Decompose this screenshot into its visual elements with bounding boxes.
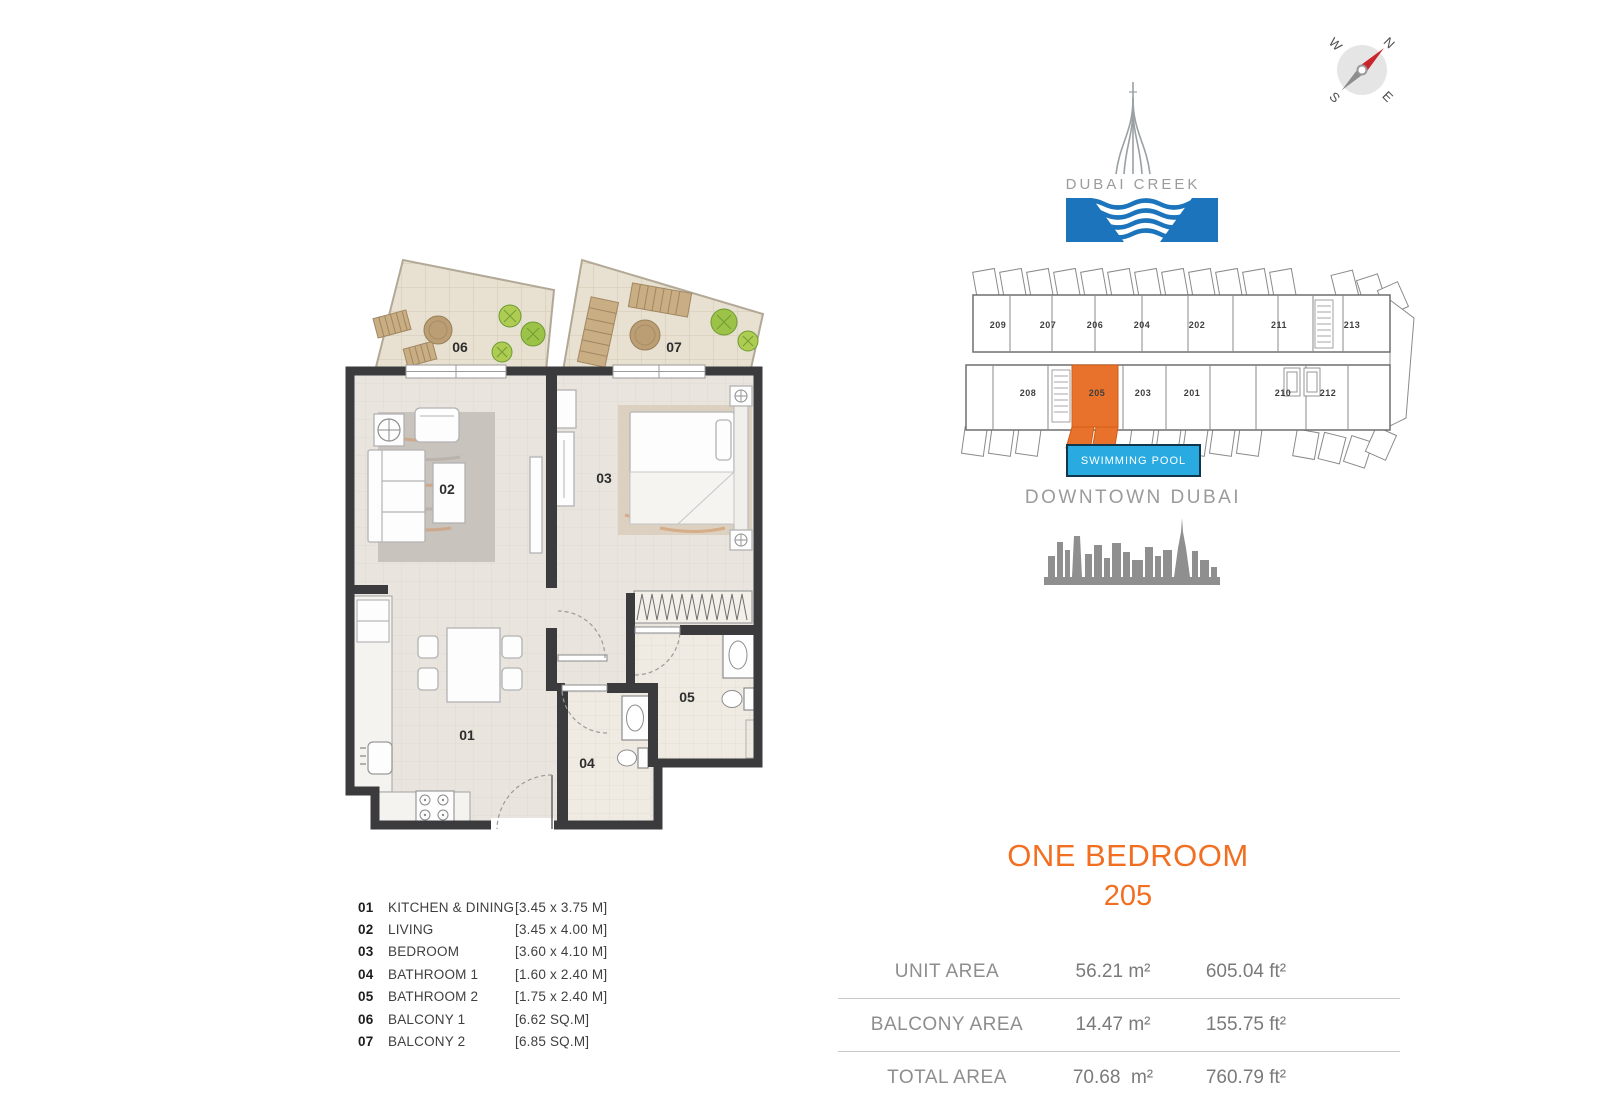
area-metric: 56.21 m² xyxy=(1056,961,1170,983)
legend-row: 07BALCONY 2[6.85 SQ.M] xyxy=(358,1030,607,1052)
dining-chair xyxy=(418,668,438,690)
legend-name: BATHROOM 1 xyxy=(388,967,515,982)
legend-row: 03BEDROOM[3.60 x 4.10 M] xyxy=(358,941,607,963)
room-label-01: 01 xyxy=(459,727,475,743)
room-label-03: 03 xyxy=(596,470,612,486)
legend-num: 04 xyxy=(358,967,388,982)
area-metric: 14.47 m² xyxy=(1056,1014,1170,1036)
keyplan-unit-number: 205 xyxy=(1089,388,1106,398)
area-label: UNIT AREA xyxy=(838,961,1056,983)
compass-s: S xyxy=(1326,89,1343,106)
room-label-07: 07 xyxy=(666,339,682,355)
legend-name: BEDROOM xyxy=(388,944,515,959)
room-label-05: 05 xyxy=(679,689,695,705)
area-table: UNIT AREA 56.21 m² 605.04 ft² BALCONY AR… xyxy=(838,946,1400,1104)
area-imperial: 155.75 ft² xyxy=(1170,1014,1322,1036)
legend-name: BALCONY 1 xyxy=(388,1012,515,1027)
legend-dim: [3.45 x 4.00 M] xyxy=(515,922,607,937)
legend-dim: [3.45 x 3.75 M] xyxy=(515,900,607,915)
room-label-06: 06 xyxy=(452,339,468,355)
keyplan-unit-number: 207 xyxy=(1040,320,1057,330)
room-legend: 01KITCHEN & DINING[3.45 x 3.75 M] 02LIVI… xyxy=(358,896,607,1053)
legend-dim: [1.60 x 2.40 M] xyxy=(515,967,607,982)
keyplan-unit-number: 202 xyxy=(1189,320,1206,330)
legend-num: 02 xyxy=(358,922,388,937)
legend-row: 04BATHROOM 1[1.60 x 2.40 M] xyxy=(358,963,607,985)
pillow xyxy=(716,420,731,460)
keyplan-unit-number: 206 xyxy=(1087,320,1104,330)
area-metric: 70.68 m² xyxy=(1056,1067,1170,1089)
legend-row: 02LIVING[3.45 x 4.00 M] xyxy=(358,918,607,940)
balcony-06: 06 xyxy=(373,260,554,371)
legend-name: BATHROOM 2 xyxy=(388,989,515,1004)
legend-dim: [6.85 SQ.M] xyxy=(515,1034,589,1049)
keyplan-unit-number: 212 xyxy=(1320,388,1337,398)
legend-num: 06 xyxy=(358,1012,388,1027)
sofa xyxy=(368,450,425,542)
legend-dim: [1.75 x 2.40 M] xyxy=(515,989,607,1004)
unit-type-title: ONE BEDROOM xyxy=(928,838,1328,874)
legend-name: BALCONY 2 xyxy=(388,1034,515,1049)
floorplan-page: 06 07 xyxy=(0,0,1600,1113)
room-label-04: 04 xyxy=(579,755,595,771)
round-table xyxy=(424,316,452,344)
balcony-07: 07 xyxy=(563,260,763,373)
dining-chair xyxy=(502,636,522,658)
compass-e: E xyxy=(1379,88,1396,105)
floor-plan-drawing: 06 07 xyxy=(330,240,770,840)
keyplan-unit-number: 201 xyxy=(1184,388,1201,398)
swimming-pool-badge: SWIMMING POOL xyxy=(1066,444,1201,477)
compass-w: W xyxy=(1326,35,1346,55)
area-row: TOTAL AREA 70.68 m² 760.79 ft² xyxy=(838,1051,1400,1104)
creek-water-waves-icon xyxy=(1066,198,1218,242)
nightstand xyxy=(730,386,752,406)
kitchen-sink xyxy=(368,742,392,774)
dining-chair xyxy=(418,636,438,658)
keyplan-unit-number: 211 xyxy=(1271,320,1287,330)
legend-name: LIVING xyxy=(388,922,515,937)
legend-num: 01 xyxy=(358,900,388,915)
legend-dim: [6.62 SQ.M] xyxy=(515,1012,589,1027)
keyplan-unit-number: 204 xyxy=(1134,320,1151,330)
legend-num: 03 xyxy=(358,944,388,959)
downtown-dubai-label: DOWNTOWN DUBAI xyxy=(1013,487,1253,509)
dubai-creek-tower-icon xyxy=(1106,80,1160,176)
swimming-pool-label: SWIMMING POOL xyxy=(1081,455,1186,467)
keyplan-building-body xyxy=(966,295,1414,430)
keyplan-unit-number: 208 xyxy=(1020,388,1037,398)
headboard xyxy=(734,406,748,530)
keyplan-unit-number: 213 xyxy=(1344,320,1361,330)
keyplan-unit-number: 209 xyxy=(990,320,1007,330)
area-row: BALCONY AREA 14.47 m² 155.75 ft² xyxy=(838,998,1400,1051)
legend-row: 05BATHROOM 2[1.75 x 2.40 M] xyxy=(358,986,607,1008)
armchair xyxy=(415,408,459,442)
sink-basin xyxy=(627,705,644,731)
compass-icon: N E S W xyxy=(1316,22,1408,114)
legend-num: 05 xyxy=(358,989,388,1004)
legend-name: KITCHEN & DINING xyxy=(388,900,515,915)
tv-console xyxy=(530,457,542,553)
dining-table xyxy=(447,628,500,702)
blanket xyxy=(630,472,734,524)
area-imperial: 605.04 ft² xyxy=(1170,961,1322,983)
keyplan-unit-number: 203 xyxy=(1135,388,1152,398)
legend-row: 01KITCHEN & DINING[3.45 x 3.75 M] xyxy=(358,896,607,918)
legend-row: 06BALCONY 1[6.62 SQ.M] xyxy=(358,1008,607,1030)
area-imperial: 760.79 ft² xyxy=(1170,1067,1322,1089)
sink-basin xyxy=(729,641,747,669)
area-row: UNIT AREA 56.21 m² 605.04 ft² xyxy=(838,946,1400,998)
dining-chair xyxy=(502,668,522,690)
stove xyxy=(416,791,454,824)
nightstand xyxy=(730,530,752,550)
wardrobe xyxy=(634,591,752,623)
area-label: BALCONY AREA xyxy=(838,1014,1056,1036)
brand-name: DUBAI CREEK xyxy=(1033,176,1233,193)
unit-205-highlight xyxy=(1066,365,1118,456)
keyplan-unit-number: 210 xyxy=(1275,388,1292,398)
legend-dim: [3.60 x 4.10 M] xyxy=(515,944,607,959)
room-label-02: 02 xyxy=(439,481,455,497)
unit-number: 205 xyxy=(928,880,1328,913)
legend-num: 07 xyxy=(358,1034,388,1049)
area-label: TOTAL AREA xyxy=(838,1067,1056,1089)
downtown-dubai-skyline-icon xyxy=(1044,516,1220,586)
